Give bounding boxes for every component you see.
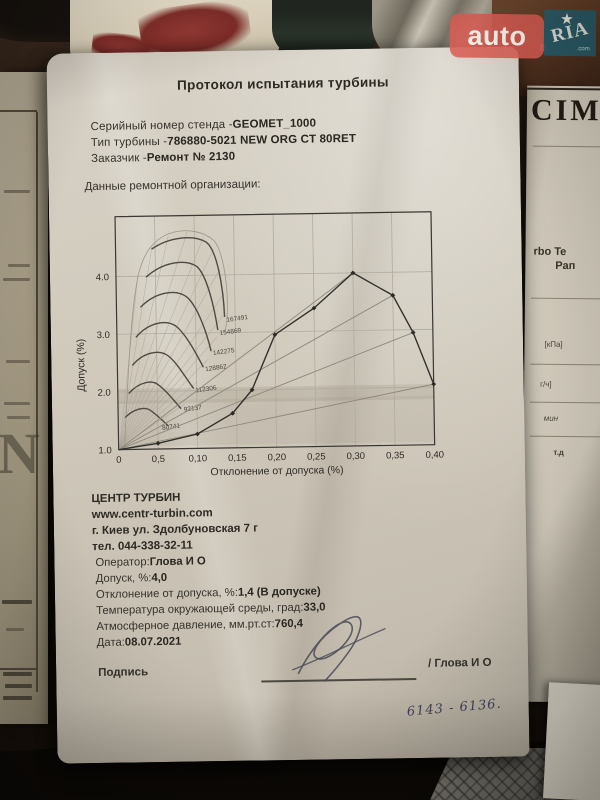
signature-name: / Глова И О xyxy=(428,657,492,670)
background-paper-left: N xyxy=(0,72,48,724)
result-label: Допуск, %: xyxy=(96,572,152,585)
result-value: 08.07.2021 xyxy=(125,636,182,649)
result-label: Оператор: xyxy=(95,556,149,569)
blurred-text-line xyxy=(3,278,30,281)
svg-text:128862: 128862 xyxy=(205,363,228,373)
blurred-text-line xyxy=(3,696,32,700)
result-value: 4,0 xyxy=(151,572,167,584)
handwritten-note: 6143 - 6136. xyxy=(406,694,537,720)
ruled-line xyxy=(0,110,37,112)
text-fragment: rbo Te xyxy=(533,246,566,258)
svg-text:4.0: 4.0 xyxy=(96,272,109,283)
result-value: Глова И О xyxy=(150,555,206,568)
svg-text:0,10: 0,10 xyxy=(189,453,208,464)
svg-text:0,30: 0,30 xyxy=(346,451,365,462)
result-label: Атмосферное давление, мм.рт.ст: xyxy=(96,618,274,633)
svg-text:0,25: 0,25 xyxy=(307,451,326,462)
text-fragment: Рап xyxy=(555,260,575,272)
field-value: Ремонт № 2130 xyxy=(147,151,236,164)
field-value: 786880-5021 NEW ORG CT 80RET xyxy=(167,133,356,148)
photo-of-turbine-test-protocol: N CIM rbo Te Рап [кПа] г/ч] мин т.д Прот… xyxy=(0,0,600,800)
text-fragment: [кПа] xyxy=(544,340,562,349)
tolerance-deviation-chart: 1674911548691422751288621123069213780741… xyxy=(65,199,487,494)
result-tolerance: Допуск, %: 4,0 xyxy=(96,572,152,585)
field-label: Серийный номер стенда - xyxy=(91,119,233,133)
signature-label: Подпись xyxy=(98,666,148,679)
shadow xyxy=(521,386,600,703)
svg-text:0: 0 xyxy=(116,455,121,466)
svg-text:Отклонение от допуска (%): Отклонение от допуска (%) xyxy=(210,464,343,478)
page-title: Протокол испытания турбины xyxy=(47,72,519,94)
org-phone: тел. 044-338-32-11 xyxy=(92,540,193,554)
svg-text:142275: 142275 xyxy=(213,347,236,357)
org-website: www.centr-turbin.com xyxy=(92,507,213,521)
blurred-text-line xyxy=(6,360,30,363)
paper-edge xyxy=(527,88,600,91)
result-value: 1,4 (В допуске) xyxy=(238,586,321,599)
domain-label: .com xyxy=(577,46,590,52)
blurred-text-line xyxy=(8,264,30,267)
result-operator: Оператор: Глова И О xyxy=(95,556,149,569)
result-label: Отклонение от допуска, %: xyxy=(96,587,238,601)
auto-badge: auto xyxy=(450,13,545,58)
field-label: Тип турбины - xyxy=(91,136,168,149)
paper-corner xyxy=(543,682,600,800)
svg-text:0,35: 0,35 xyxy=(386,450,405,461)
ruled-line xyxy=(530,364,600,366)
blurred-text-line xyxy=(4,402,30,405)
field-turbine-type: Тип турбины - 786880-5021 NEW ORG CT 80R… xyxy=(91,136,168,149)
result-deviation: Отклонение от допуска, %: 1,4 (В допуске… xyxy=(96,587,238,601)
svg-text:0,20: 0,20 xyxy=(267,452,286,463)
protocol-document: Протокол испытания турбины Серийный номе… xyxy=(46,46,529,763)
field-value: GEOMET_1000 xyxy=(233,118,317,131)
blurred-text-line xyxy=(3,672,32,676)
field-customer: Заказчик - Ремонт № 2130 xyxy=(91,152,147,165)
ruled-line xyxy=(531,298,600,300)
ruled-line xyxy=(533,146,600,148)
svg-text:0,40: 0,40 xyxy=(425,450,444,461)
blurred-text-line xyxy=(7,416,30,419)
blurred-text-line xyxy=(2,600,32,604)
background-paper-right: CIM rbo Te Рап [кПа] г/ч] мин т.д xyxy=(521,86,600,703)
result-label: Дата: xyxy=(97,637,125,649)
svg-text:Допуск (%): Допуск (%) xyxy=(75,339,88,392)
result-label: Температура окружающей среды, град: xyxy=(96,602,303,617)
svg-text:154869: 154869 xyxy=(219,327,242,337)
svg-text:0,5: 0,5 xyxy=(152,454,165,465)
chart-canvas: 1674911548691422751288621123069213780741… xyxy=(65,199,487,494)
result-temperature: Температура окружающей среды, град: 33,0 xyxy=(96,602,303,617)
svg-text:2.0: 2.0 xyxy=(97,388,110,399)
svg-text:3.0: 3.0 xyxy=(97,330,110,341)
auto-ria-watermark: auto ★ RIA .com xyxy=(448,8,598,64)
ria-label: RIA xyxy=(543,17,597,50)
watermark-letter: N xyxy=(0,420,36,487)
svg-text:1.0: 1.0 xyxy=(98,445,111,456)
blurred-text-line xyxy=(6,628,24,631)
org-name: ЦЕНТР ТУРБИН xyxy=(91,492,180,505)
svg-text:167491: 167491 xyxy=(226,314,249,324)
signature-scribble xyxy=(283,606,404,690)
field-serial-number: Серийный номер стенда - GEOMET_1000 xyxy=(91,119,233,133)
svg-text:0,15: 0,15 xyxy=(228,453,247,464)
blurred-text-line xyxy=(4,190,30,193)
ria-badge: ★ RIA .com xyxy=(544,10,597,57)
field-label: Заказчик - xyxy=(91,152,147,165)
logo-fragment-text: CIM xyxy=(531,94,600,129)
ruled-line xyxy=(0,668,37,670)
blurred-text-line xyxy=(5,684,32,688)
ruled-line xyxy=(36,112,38,692)
org-address: г. Киев ул. Здолбуновская 7 г xyxy=(92,522,258,537)
result-pressure: Атмосферное давление, мм.рт.ст: 760,4 xyxy=(96,618,274,633)
section-heading: Данные ремонтной организации: xyxy=(84,178,260,193)
result-date: Дата: 08.07.2021 xyxy=(97,637,125,649)
